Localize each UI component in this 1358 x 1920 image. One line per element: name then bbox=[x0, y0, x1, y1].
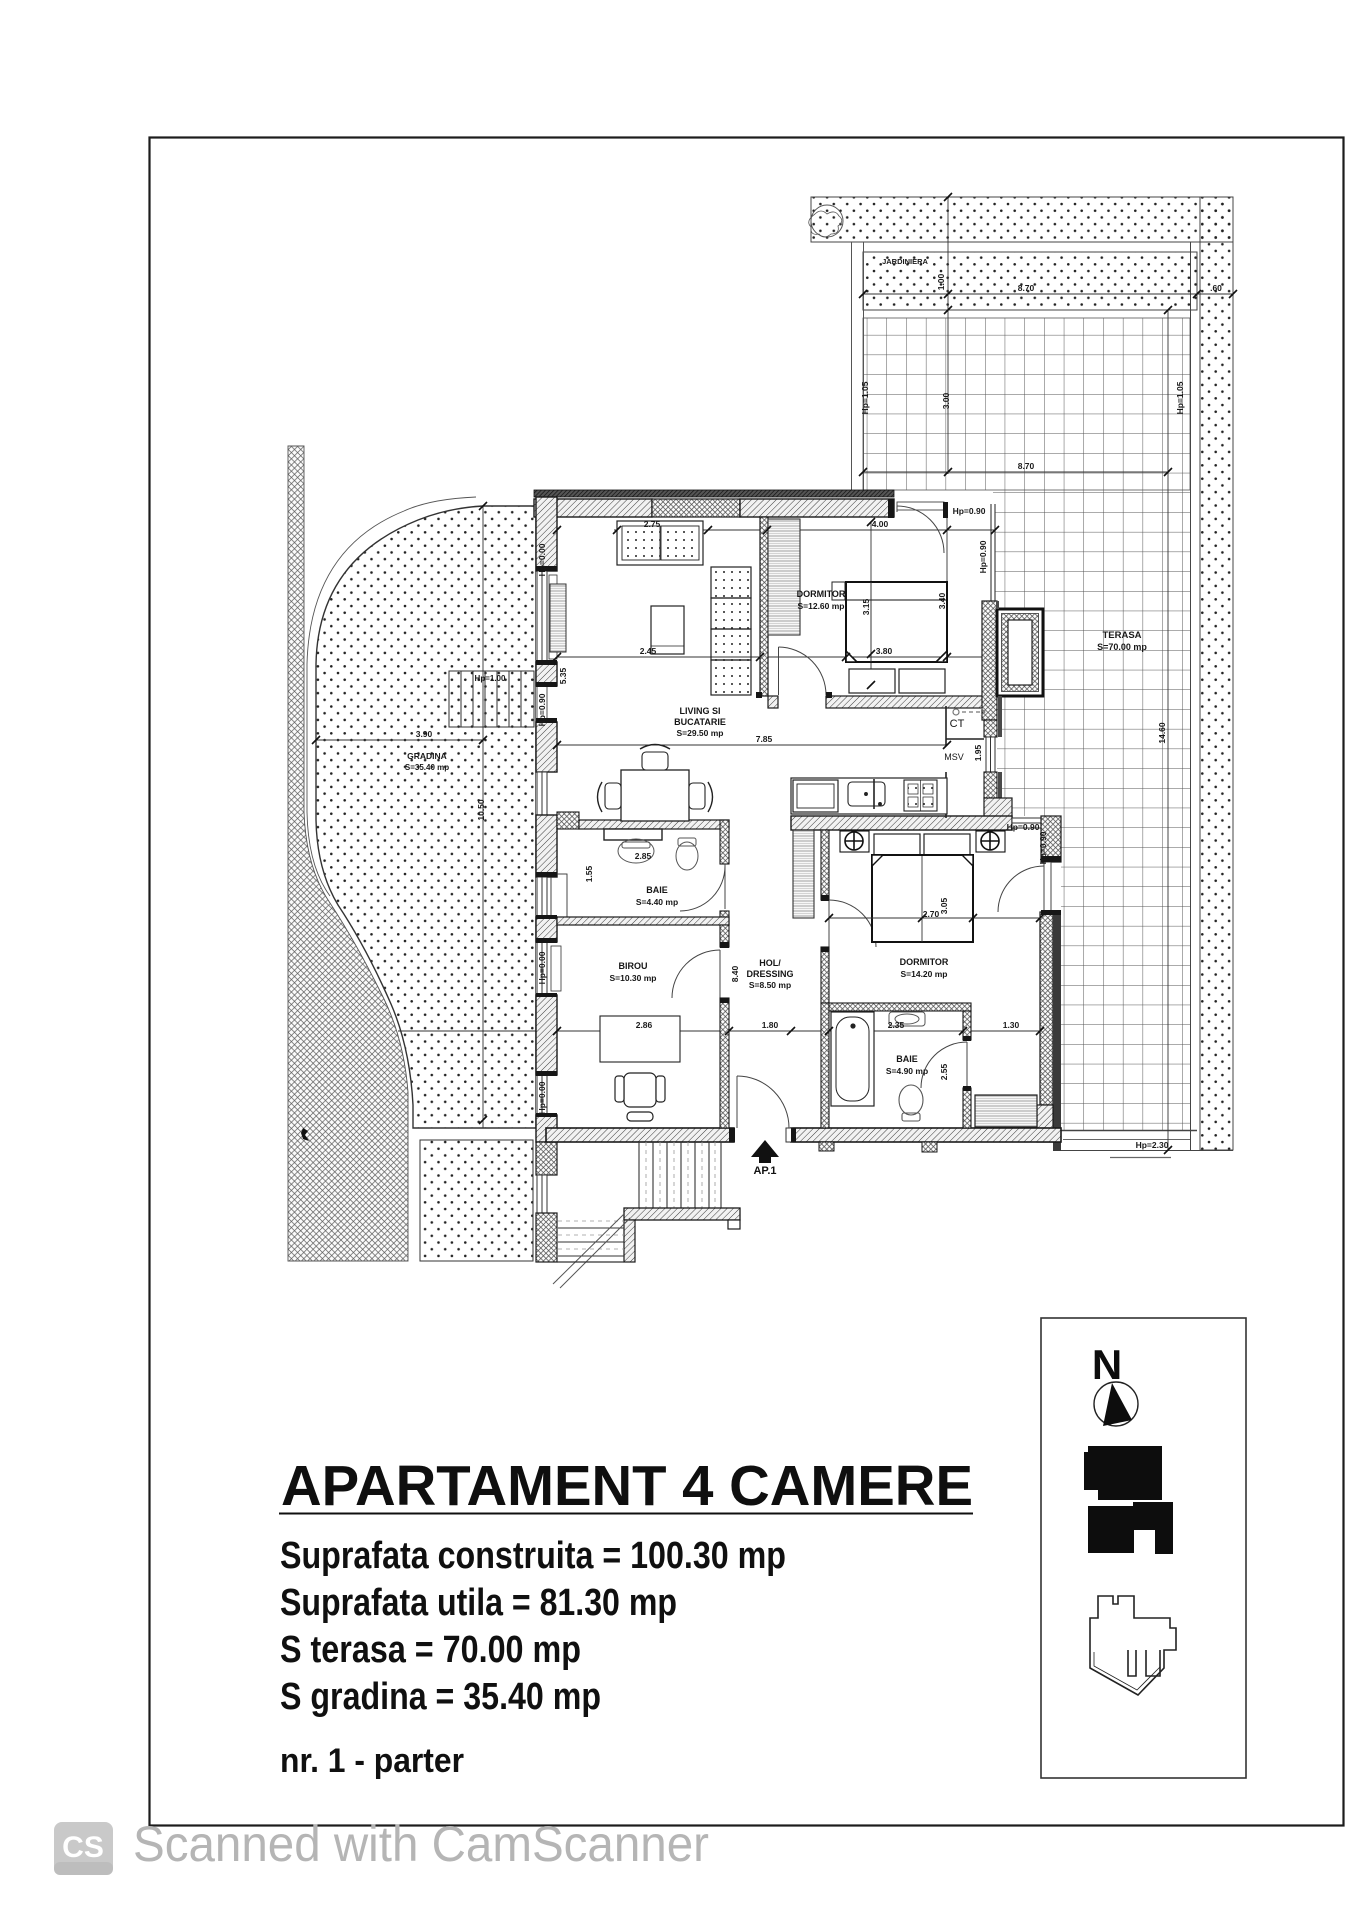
svg-text:AP.1: AP.1 bbox=[753, 1165, 776, 1177]
svg-text:DORMITOR: DORMITOR bbox=[797, 589, 846, 599]
svg-text:1.00: 1.00 bbox=[936, 273, 946, 290]
svg-text:nr. 1 - parter: nr. 1 - parter bbox=[280, 1742, 464, 1780]
svg-text:10.50: 10.50 bbox=[476, 799, 486, 821]
svg-text:Scanned with CamScanner: Scanned with CamScanner bbox=[133, 1816, 709, 1872]
svg-text:S=35.40 mp: S=35.40 mp bbox=[405, 763, 449, 772]
svg-text:MSV: MSV bbox=[944, 752, 964, 762]
svg-text:GRADINA: GRADINA bbox=[407, 751, 447, 761]
svg-text:.60: .60 bbox=[1210, 283, 1222, 293]
svg-text:2.55: 2.55 bbox=[939, 1063, 949, 1080]
svg-text:BAIE: BAIE bbox=[896, 1054, 918, 1064]
svg-text:2.45: 2.45 bbox=[640, 646, 657, 656]
svg-text:3.05: 3.05 bbox=[939, 897, 949, 914]
svg-text:CS: CS bbox=[62, 1831, 104, 1864]
svg-text:2.85: 2.85 bbox=[635, 851, 652, 861]
svg-text:TERASA: TERASA bbox=[1102, 630, 1141, 641]
svg-text:Suprafata utila = 81.30 mp: Suprafata utila = 81.30 mp bbox=[280, 1582, 677, 1624]
svg-text:N: N bbox=[1092, 1341, 1122, 1388]
svg-text:8.40: 8.40 bbox=[730, 965, 740, 982]
svg-text:4.00: 4.00 bbox=[872, 519, 889, 529]
svg-text:BAIE: BAIE bbox=[646, 885, 668, 895]
svg-text:S=4.40 mp: S=4.40 mp bbox=[636, 897, 678, 907]
svg-text:3.00: 3.00 bbox=[941, 392, 951, 409]
svg-text:DORMITOR: DORMITOR bbox=[900, 957, 949, 967]
svg-text:HOL/: HOL/ bbox=[759, 958, 781, 968]
svg-text:Hp=0.90: Hp=0.90 bbox=[1007, 822, 1040, 832]
svg-text:LIVING SI: LIVING SI bbox=[679, 706, 720, 716]
svg-text:1.80: 1.80 bbox=[762, 1020, 779, 1030]
svg-text:Hp=1.05: Hp=1.05 bbox=[860, 381, 870, 414]
svg-text:JARDINIERA: JARDINIERA bbox=[882, 257, 928, 266]
svg-text:Hp=0.90: Hp=0.90 bbox=[1038, 831, 1048, 864]
svg-text:CT: CT bbox=[950, 718, 965, 730]
svg-text:3.80: 3.80 bbox=[876, 646, 893, 656]
svg-text:S=70.00 mp: S=70.00 mp bbox=[1097, 642, 1147, 652]
svg-text:8.70: 8.70 bbox=[1018, 461, 1035, 471]
svg-text:5.35: 5.35 bbox=[558, 667, 568, 684]
svg-text:S=8.50 mp: S=8.50 mp bbox=[749, 980, 791, 990]
svg-text:Suprafata construita = 100.30: Suprafata construita = 100.30 mp bbox=[280, 1535, 786, 1577]
svg-text:3.15: 3.15 bbox=[861, 598, 871, 615]
svg-text:S=10.30 mp: S=10.30 mp bbox=[609, 973, 656, 983]
svg-text:2.75: 2.75 bbox=[644, 519, 661, 529]
svg-text:BIROU: BIROU bbox=[619, 961, 648, 971]
svg-text:Hp=0.90: Hp=0.90 bbox=[537, 693, 547, 726]
svg-text:S=4.90 mp: S=4.90 mp bbox=[886, 1066, 928, 1076]
svg-text:S=12.60 mp: S=12.60 mp bbox=[797, 601, 844, 611]
svg-text:APARTAMENT 4 CAMERE: APARTAMENT 4 CAMERE bbox=[281, 1454, 973, 1518]
svg-text:1.95: 1.95 bbox=[973, 744, 983, 761]
svg-text:DRESSING: DRESSING bbox=[746, 969, 793, 979]
svg-text:Hp=1.05: Hp=1.05 bbox=[1175, 381, 1185, 414]
svg-text:3.40: 3.40 bbox=[937, 592, 947, 609]
svg-text:14.60: 14.60 bbox=[1157, 722, 1167, 744]
svg-text:Hp=0.90: Hp=0.90 bbox=[978, 540, 988, 573]
svg-text:2.35: 2.35 bbox=[888, 1020, 905, 1030]
svg-text:1.55: 1.55 bbox=[584, 865, 594, 882]
svg-text:1.30: 1.30 bbox=[1003, 1020, 1020, 1030]
svg-text:Hp=2.30: Hp=2.30 bbox=[1136, 1140, 1169, 1150]
svg-text:Hp=0.00: Hp=0.00 bbox=[537, 951, 547, 984]
svg-text:Hp=1.00: Hp=1.00 bbox=[475, 674, 506, 683]
svg-text:S=14.20 mp: S=14.20 mp bbox=[900, 969, 947, 979]
svg-text:8.70: 8.70 bbox=[1018, 283, 1035, 293]
svg-text:BUCATARIE: BUCATARIE bbox=[674, 717, 726, 727]
svg-text:2.86: 2.86 bbox=[636, 1020, 653, 1030]
svg-text:Hp=0.00: Hp=0.00 bbox=[537, 1081, 547, 1114]
svg-text:2.70: 2.70 bbox=[923, 909, 940, 919]
svg-text:S terasa = 70.00 mp: S terasa = 70.00 mp bbox=[280, 1629, 581, 1671]
svg-text:S=29.50 mp: S=29.50 mp bbox=[676, 728, 723, 738]
svg-text:7.85: 7.85 bbox=[756, 734, 773, 744]
svg-text:Hp=0.90: Hp=0.90 bbox=[953, 506, 986, 516]
svg-text:3.90: 3.90 bbox=[416, 729, 433, 739]
svg-text:S gradina = 35.40 mp: S gradina = 35.40 mp bbox=[280, 1676, 601, 1718]
svg-text:Hp=0.00: Hp=0.00 bbox=[537, 543, 547, 576]
